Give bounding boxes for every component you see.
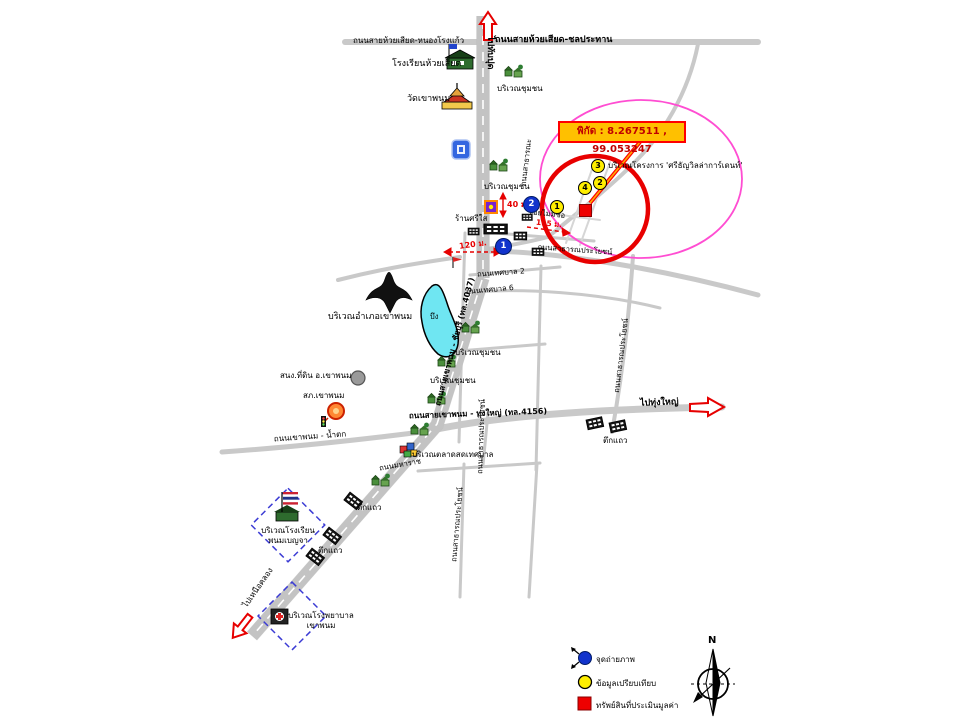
comparable-point-4: 4 bbox=[578, 181, 592, 195]
shophouse-label-1: ตึกแถว bbox=[603, 436, 628, 446]
photo-point-1: 1 bbox=[495, 238, 512, 255]
pond-label: บึง bbox=[430, 312, 438, 321]
map-canvas: ถนนสายห้วยเสียด-หนองโรงแก้ว ถนนสายห้วยเส… bbox=[0, 0, 960, 720]
phanom-school-label: บริเวณโรงเรียน พนมเบญจา bbox=[250, 526, 326, 545]
direction-label-east: ไปทุ่งใหญ่ bbox=[640, 397, 679, 409]
subject-property-marker bbox=[579, 204, 592, 217]
compass-north-label: N bbox=[708, 635, 716, 647]
traffic-light-icon bbox=[321, 416, 326, 427]
coordinate-callout: พิกัด : 8.267511 , 99.053247 bbox=[558, 121, 686, 143]
legend-label-subject: ทรัพย์สินที่ประเมินมูลค่า bbox=[596, 699, 678, 712]
road-label-top-right: ถนนสายห้วยเสียด-ชลประทาน bbox=[495, 35, 612, 46]
shophouse-label-2: ตึกแถว bbox=[357, 503, 382, 513]
legend-comparable-icon bbox=[579, 676, 592, 689]
comparable-point-2: 2 bbox=[593, 176, 607, 190]
road-label-top-left: ถนนสายห้วยเสียด-หนองโรงแก้ว bbox=[353, 36, 464, 46]
land-office-label: สนง.ที่ดิน อ.เขาพนม bbox=[280, 371, 351, 381]
shophouse-label-3: ตึกแถว bbox=[318, 546, 343, 556]
legend-photo-point-icon bbox=[571, 647, 592, 669]
photo-point-2: 2 bbox=[523, 196, 540, 213]
hospital-label: บริเวณโรงพยาบาล เขาพนม bbox=[288, 611, 354, 630]
hospital-icon bbox=[271, 609, 288, 624]
measure-40m-arrow bbox=[500, 193, 506, 217]
garuda-emblem-icon bbox=[366, 272, 412, 313]
direction-label-north: ไปทับปุด bbox=[484, 36, 495, 69]
legend-subject-icon bbox=[578, 697, 591, 710]
shop-label: ร้านศรีใส bbox=[455, 214, 487, 224]
phanom-school-icon bbox=[274, 492, 300, 521]
compass-rose-icon bbox=[691, 649, 735, 716]
community-label-1: บริเวณชุมชน bbox=[497, 84, 543, 94]
highway-shield-icon bbox=[452, 140, 470, 159]
legend-label-photo-point: จุดถ่ายภาพ bbox=[596, 653, 635, 666]
arrow-east-icon bbox=[690, 398, 724, 416]
community-label-4: บริเวณชุมชน bbox=[430, 376, 476, 386]
land-office-icon bbox=[351, 371, 365, 385]
project-label: บริเวณโครงการ 'ศรีธัญวิลล่าการ์เดนท์' bbox=[608, 161, 743, 171]
map-drawing bbox=[0, 0, 960, 720]
police-label: สภ.เขาพนม bbox=[303, 391, 344, 401]
comparable-point-1: 1 bbox=[550, 200, 564, 214]
shrine-icon bbox=[485, 201, 497, 213]
school-huai-siat-label: โรงเรียนห้วยเสียด bbox=[392, 59, 461, 70]
amphoe-label: บริเวณอำเภอเขาพนม bbox=[328, 312, 412, 323]
legend-label-comparable: ข้อมูลเปรียบเทียบ bbox=[596, 677, 656, 690]
temple-label: วัดเขาพนม bbox=[407, 94, 450, 105]
comparable-point-3: 3 bbox=[591, 159, 605, 173]
community-label-3: บริเวณชุมชน bbox=[455, 348, 501, 358]
